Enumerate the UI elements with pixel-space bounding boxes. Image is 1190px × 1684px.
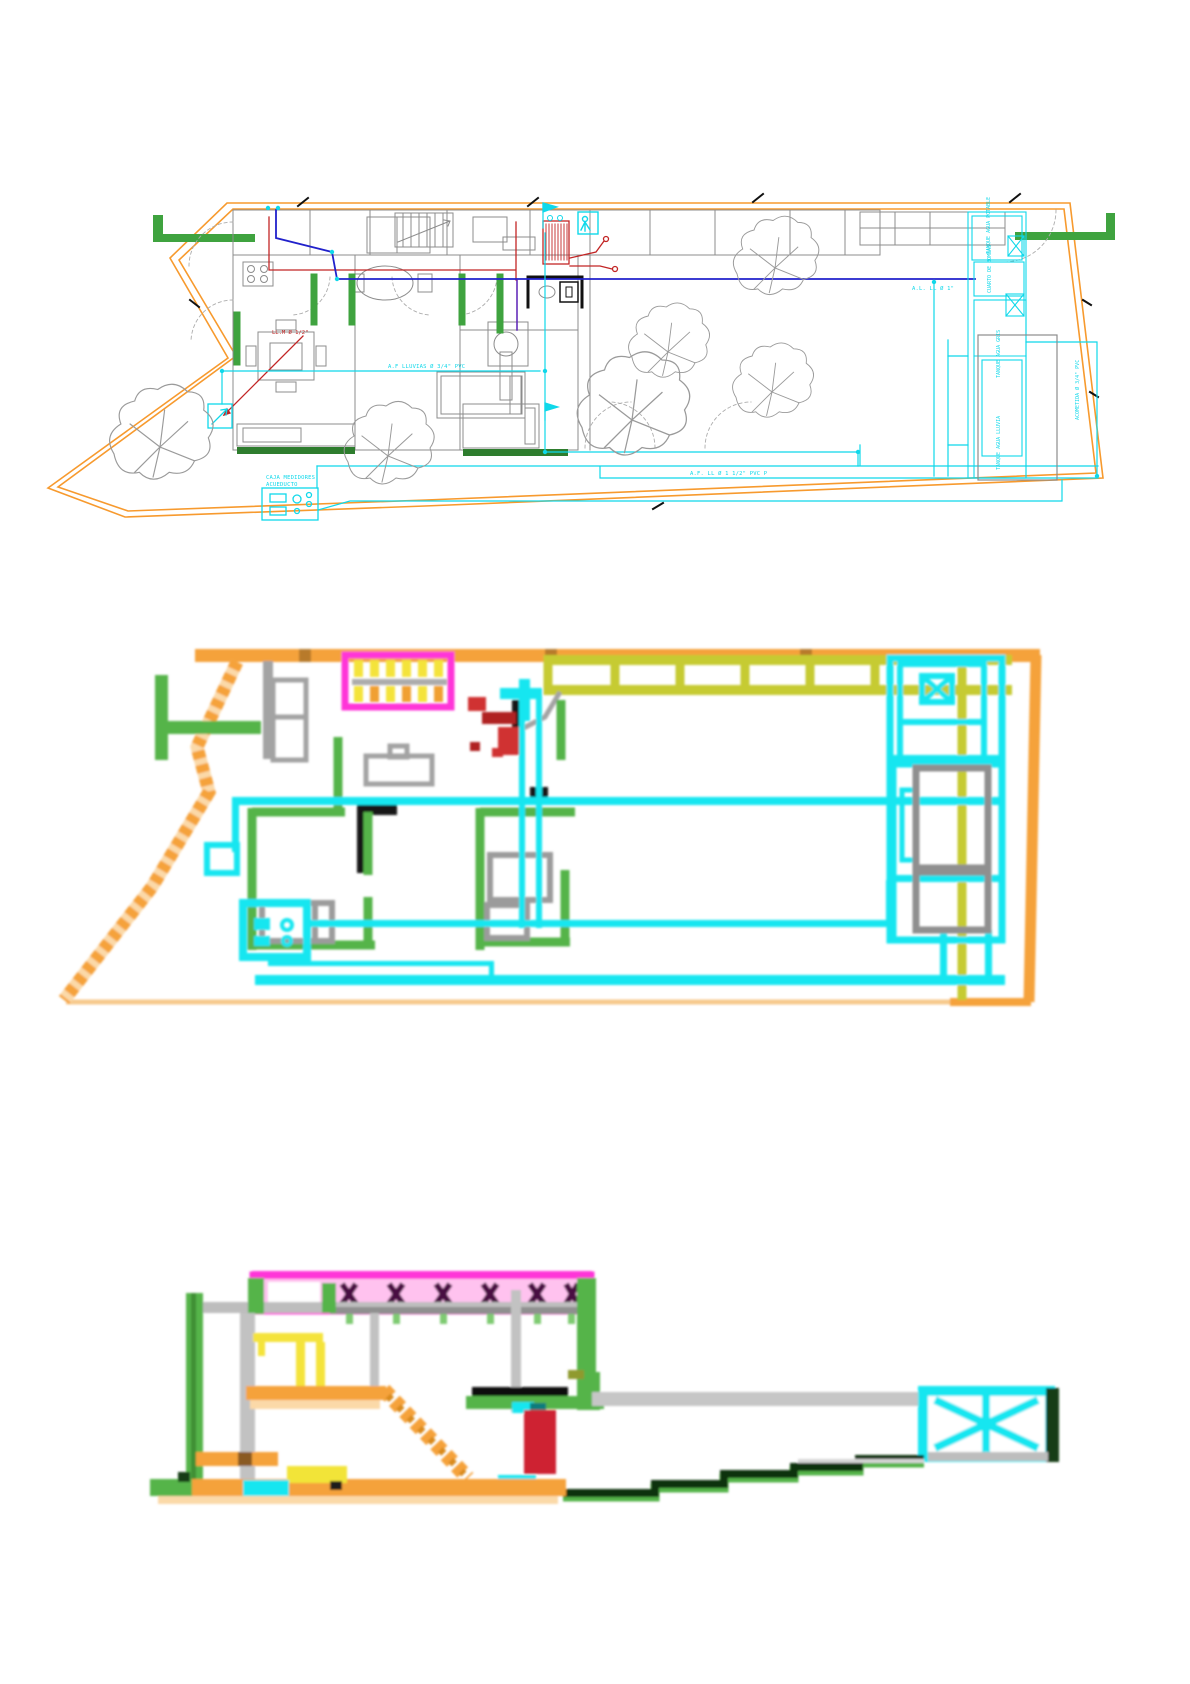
- pennant-flag-bottom: [545, 403, 558, 420]
- px-stairs: [345, 655, 451, 707]
- lot-boundary: [48, 203, 1103, 517]
- drawing-sheet: { "page": { "title": "Plano instalacione…: [0, 0, 1190, 1684]
- tree: [344, 401, 434, 484]
- label-right-pipe: A.L. LL Ø 1": [912, 285, 954, 292]
- shower-box: [578, 212, 598, 234]
- label-pump-room: CUARTO DE BOMBAS: [987, 245, 993, 293]
- px-meter-box: [207, 845, 307, 957]
- stairs: [395, 213, 453, 247]
- water-heater: [543, 216, 569, 265]
- closet-bottom: [237, 424, 355, 446]
- px-tanks-gray: [916, 768, 988, 930]
- tree: [577, 352, 690, 455]
- sec-railing: [253, 1333, 325, 1392]
- pixel-plan: [64, 649, 1040, 1002]
- tree: [733, 343, 814, 417]
- pixel-section: [150, 1271, 1059, 1504]
- house-walls: [233, 210, 1005, 450]
- tanks-gray-walls: [978, 335, 1057, 480]
- plan-labels: A.F LLUVIAS Ø 3/4" PVC LL.M Ø 1/2" CAJA …: [266, 197, 1081, 488]
- px-heater-cluster: [468, 679, 542, 757]
- oval-table: [350, 266, 432, 300]
- sec-terrain-steps: [563, 1459, 924, 1497]
- bed-room2: [463, 404, 539, 448]
- label-bottom-pipe: A.F. LL Ø 1 1/2" PVC P: [690, 470, 768, 477]
- plans-canvas: A.F LLUVIAS Ø 3/4" PVC LL.M Ø 1/2" CAJA …: [0, 0, 1190, 1684]
- label-tank-gray: TANQUE AGUA GRIS: [996, 330, 1002, 378]
- label-hot-water: LL.M Ø 1/2": [272, 329, 308, 336]
- sec-roof: [252, 1271, 592, 1324]
- upper-closets: [367, 217, 535, 253]
- label-rain-pipe: A.F LLUVIAS Ø 3/4" PVC: [388, 363, 465, 370]
- sec-ground-right: [592, 1388, 1059, 1462]
- bathroom: [528, 277, 582, 307]
- site-plan: A.F LLUVIAS Ø 3/4" PVC LL.M Ø 1/2" CAJA …: [48, 194, 1115, 520]
- label-meter-2: ACUEDUCTO: [266, 482, 298, 488]
- meter-box-small: [208, 404, 232, 428]
- green-marker-left: [153, 215, 255, 242]
- tree: [629, 303, 710, 377]
- label-tank-rain: TANQUE AGUA LLUVIA: [996, 416, 1002, 470]
- trees: [110, 216, 819, 484]
- label-meter-1: CAJA MEDIDORES: [266, 475, 315, 481]
- label-acometida: ACOMETIDA Ø 3/4" PVC: [1074, 360, 1081, 420]
